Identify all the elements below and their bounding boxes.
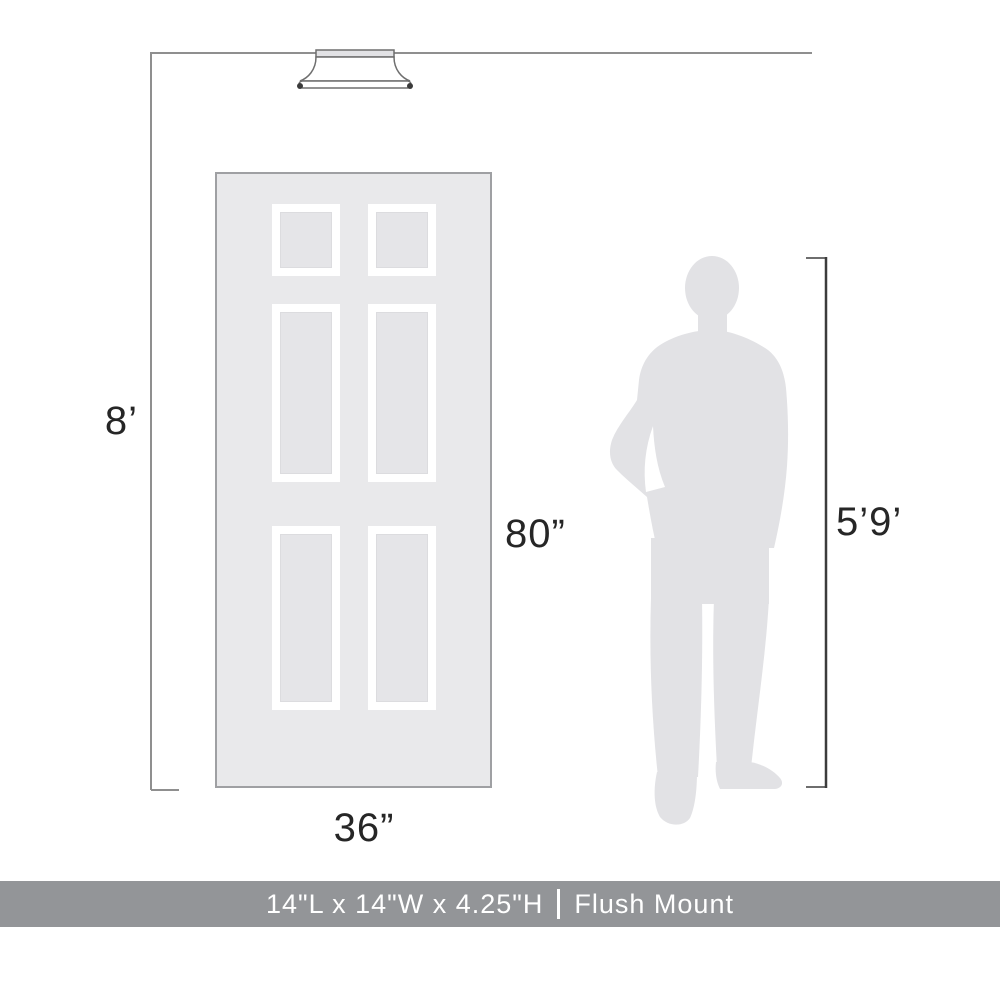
spec-mount-type-text: Flush Mount [574, 889, 734, 920]
fixture-rim [299, 81, 411, 88]
fixture-canopy [316, 50, 394, 57]
fixture-finial-left [297, 83, 303, 89]
door-panel-inner [280, 312, 332, 474]
door-panel-inner [376, 534, 428, 702]
person-height-dimension [806, 257, 826, 788]
fixture-dome [300, 57, 410, 81]
spec-separator [557, 889, 560, 919]
product-spec-bar: 14"L x 14"W x 4.25"H Flush Mount [0, 881, 1000, 927]
fixture-finial-right [407, 83, 413, 89]
door-panel [272, 204, 340, 276]
left-shoe [655, 772, 697, 825]
door-panel [272, 526, 340, 710]
door-panel [368, 526, 436, 710]
right-shoe [716, 762, 782, 789]
door-panel-inner [280, 212, 332, 268]
person-silhouette [610, 256, 788, 825]
ceiling-height-label: 8’ [88, 401, 138, 441]
door-panel-inner [280, 534, 332, 702]
size-comparison-diagram: 8’ 80” 36” 5’9’ 14"L x 14"W x 4.25"H Flu… [0, 0, 1000, 1000]
door-illustration [215, 172, 492, 788]
door-height-label: 80” [505, 514, 566, 554]
spec-dimensions-text: 14"L x 14"W x 4.25"H [266, 889, 543, 920]
person-height-label: 5’9’ [836, 502, 902, 542]
door-panel-inner [376, 212, 428, 268]
door-panel [368, 304, 436, 482]
door-width-label: 36” [312, 808, 416, 848]
door-panel-inner [376, 312, 428, 474]
door-panel [368, 204, 436, 276]
door-panel [272, 304, 340, 482]
flush-mount-light-icon [297, 50, 413, 89]
